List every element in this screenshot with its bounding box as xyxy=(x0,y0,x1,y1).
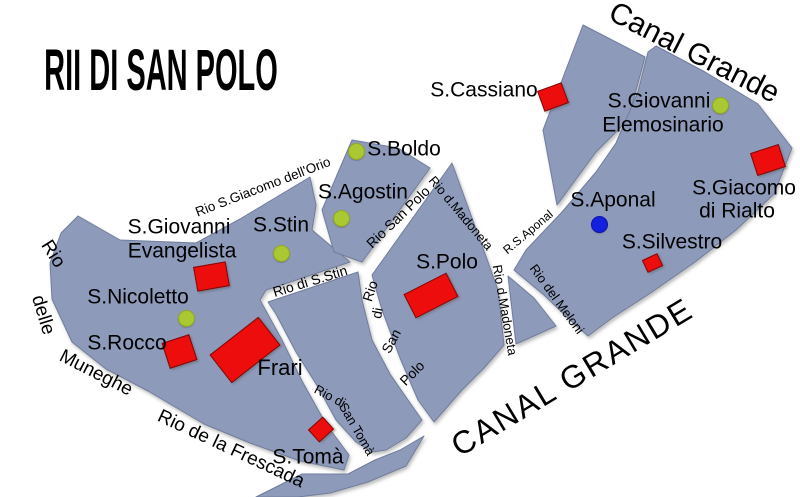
label-s-giovanni-evangelista-2: Evangelista xyxy=(128,241,237,262)
green-dot-s-agostin xyxy=(333,210,350,227)
venice-san-polo-map: RII DI SAN POLOCanal GrandeCANAL GRANDES… xyxy=(0,0,800,497)
label-s-nicoletto: S.Nicoletto xyxy=(87,287,189,308)
map-title: RII DI SAN POLO xyxy=(44,42,278,100)
green-dot-s-boldo xyxy=(348,143,365,160)
blue-dot-s-aponal xyxy=(591,216,608,233)
label-s-agostin: S.Agostin xyxy=(318,182,408,203)
green-dot-s-stin xyxy=(273,245,290,262)
label-s-polo: S.Polo xyxy=(416,252,478,273)
label-s-giacomo-1: S.Giacomo xyxy=(692,178,796,199)
church-marker-evangelista xyxy=(193,261,230,291)
label-s-rocco: S.Rocco xyxy=(87,333,166,354)
label-s-giovanni-elemosinario-1: S.Giovanni xyxy=(608,91,711,112)
label-frari: Frari xyxy=(257,357,302,379)
label-s-stin: S.Stin xyxy=(253,215,309,236)
label-s-aponal: S.Aponal xyxy=(570,190,655,211)
label-s-giovanni-evangelista-1: S.Giovanni xyxy=(128,217,231,238)
label-s-boldo: S.Boldo xyxy=(367,139,441,160)
green-dot-elemosinario xyxy=(712,97,729,114)
canal-label-rio-di-san-polo-2: di xyxy=(369,306,385,319)
green-dot-s-nicoletto xyxy=(178,310,195,327)
label-s-giovanni-elemosinario-2: Elemosinario xyxy=(602,115,723,136)
label-s-cassiano: S.Cassiano xyxy=(430,80,537,101)
label-s-giacomo-2: di Rialto xyxy=(699,201,775,222)
label-s-silvestro: S.Silvestro xyxy=(622,232,722,253)
